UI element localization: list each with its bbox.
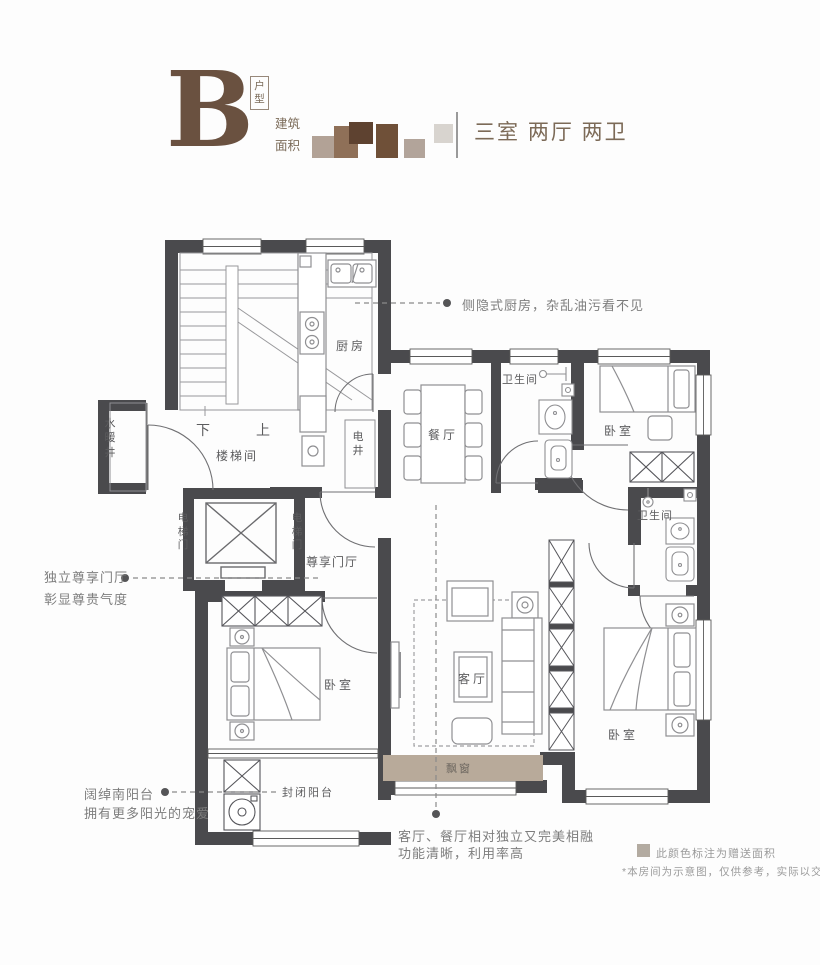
stair-up-label: 上 <box>256 420 270 440</box>
wardrobe-top-right-icon <box>630 452 694 482</box>
bathroom-top-fixtures <box>539 367 574 478</box>
kitchen-sink-icon <box>328 260 376 287</box>
gift-area-legend: 此颜色标注为赠送面积 <box>656 845 776 861</box>
room-label-stairwell: 楼梯间 <box>216 447 258 464</box>
kitchen-annotation: 侧隐式厨房，杂乱油污看不见 <box>462 295 644 314</box>
elevator-door-left-label: 电梯门 <box>176 512 190 553</box>
kitchen-counter <box>298 253 326 466</box>
room-label-living: 客厅 <box>458 670 488 687</box>
washing-machine-icon <box>224 760 260 830</box>
bed-double-right-icon <box>604 604 696 736</box>
room-label-kitchen: 厨房 <box>336 337 366 354</box>
balcony-annotation-line2: 拥有更多阳光的宠爱 <box>84 803 210 822</box>
foyer-annotation-line1: 独立尊享门厅 <box>44 567 128 586</box>
wardrobe-left-icon <box>222 596 322 626</box>
balcony-annotation-line1: 阔绰南阳台 <box>84 784 154 803</box>
room-label-bedroom-left: 卧室 <box>324 676 354 693</box>
bed-double-left-icon <box>227 628 320 740</box>
room-label-dining: 餐厅 <box>428 426 458 443</box>
bathroom-right-fixtures <box>643 488 696 581</box>
gift-area-swatch <box>637 844 650 857</box>
room-label-water-shaft: 水暖井 <box>103 417 117 460</box>
living-annotation-line2: 功能清晰，利用率高 <box>398 843 524 862</box>
room-label-foyer: 尊享门厅 <box>306 553 358 570</box>
partition-cabinet-column <box>549 540 574 750</box>
foyer-annotation-line2: 彰显尊贵气度 <box>44 589 128 608</box>
room-label-balcony: 封闭阳台 <box>282 784 334 800</box>
room-label-bedroom-bottom-right: 卧室 <box>608 726 638 743</box>
room-label-bath-top: 卫生间 <box>502 371 538 387</box>
room-label-bedroom-top-right: 卧室 <box>604 422 634 439</box>
room-label-electric-shaft: 电井 <box>351 430 365 459</box>
elevator-icon <box>206 503 276 578</box>
living-room-furniture <box>391 581 542 746</box>
elevator-door-right-label: 电梯门 <box>290 512 304 553</box>
room-label-bay-window: 飘窗 <box>446 760 472 776</box>
disclaimer-text: *本房间为示意图，仅供参考，实际以交付为准 <box>622 864 820 879</box>
stair-down-label: 下 <box>196 420 210 440</box>
room-label-bath-right: 卫生间 <box>637 507 673 523</box>
stove-icon <box>300 312 324 354</box>
floorplan-page: B 户型 建筑面积 三室 两厅 两卫 <box>0 0 820 965</box>
